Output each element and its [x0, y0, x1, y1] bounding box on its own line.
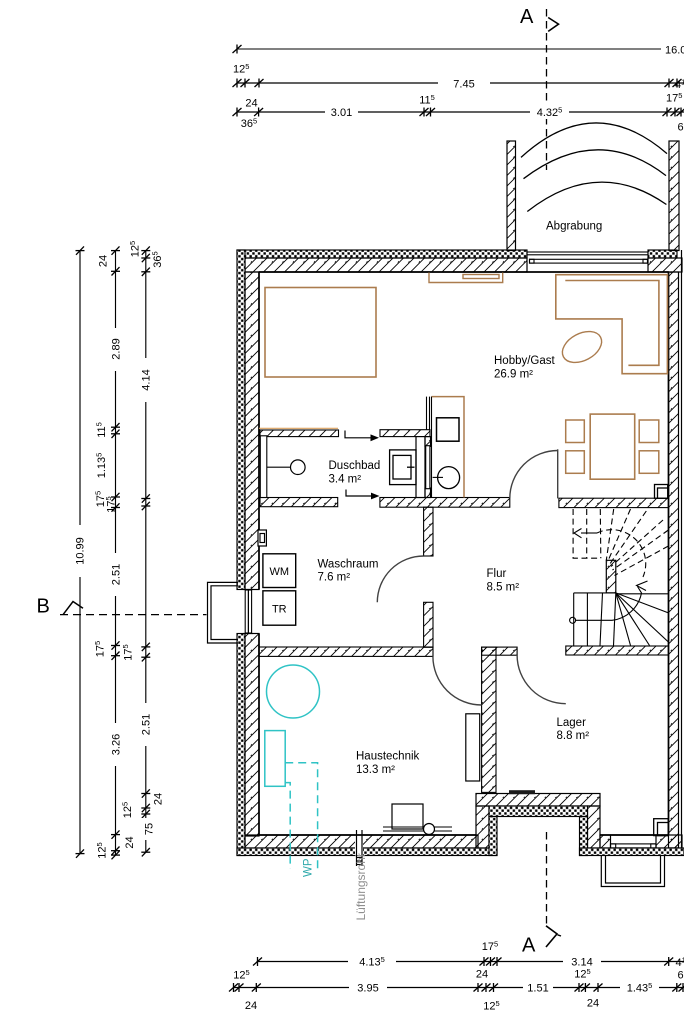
- svg-text:24: 24: [98, 255, 110, 267]
- svg-text:Waschraum: Waschraum: [318, 559, 379, 571]
- svg-text:Flur: Flur: [487, 568, 507, 580]
- svg-text:1.51: 1.51: [527, 983, 548, 995]
- svg-text:WP: WP: [303, 858, 315, 877]
- svg-text:75: 75: [144, 823, 156, 835]
- svg-text:10.99: 10.99: [75, 537, 87, 565]
- svg-text:Hobby/Gast: Hobby/Gast: [494, 355, 556, 367]
- svg-text:24: 24: [587, 998, 599, 1010]
- svg-text:13.3 m²: 13.3 m²: [356, 764, 395, 776]
- svg-text:16.0: 16.0: [665, 45, 684, 57]
- svg-text:Duschbad: Duschbad: [329, 460, 381, 472]
- svg-text:Lüftungsrohr: Lüftungsrohr: [354, 853, 368, 920]
- svg-text:24: 24: [476, 969, 488, 981]
- svg-text:4.14: 4.14: [141, 369, 153, 390]
- svg-text:8.8 m²: 8.8 m²: [557, 730, 590, 742]
- svg-text:24: 24: [245, 98, 257, 110]
- svg-text:3.95: 3.95: [357, 983, 378, 995]
- svg-text:8.5 m²: 8.5 m²: [487, 582, 520, 594]
- svg-text:Lager: Lager: [557, 717, 587, 729]
- svg-text:A: A: [520, 6, 534, 28]
- svg-text:24: 24: [124, 836, 136, 848]
- svg-text:B: B: [37, 596, 50, 618]
- svg-text:TR: TR: [272, 604, 287, 616]
- svg-text:26.9 m²: 26.9 m²: [494, 369, 533, 381]
- svg-text:7.6 m²: 7.6 m²: [318, 572, 351, 584]
- svg-text:Haustechnik: Haustechnik: [356, 751, 420, 763]
- svg-text:6: 6: [678, 122, 684, 134]
- svg-text:3.01: 3.01: [331, 107, 352, 119]
- svg-text:24: 24: [153, 793, 165, 805]
- svg-text:2.51: 2.51: [111, 564, 123, 585]
- svg-text:7.45: 7.45: [453, 79, 474, 91]
- svg-text:3.4 m²: 3.4 m²: [329, 474, 362, 486]
- svg-text:A: A: [522, 935, 536, 957]
- svg-text:2.89: 2.89: [111, 338, 123, 359]
- svg-text:3.26: 3.26: [111, 734, 123, 755]
- svg-text:24: 24: [245, 1000, 257, 1012]
- svg-text:2.51: 2.51: [141, 714, 153, 735]
- svg-text:6: 6: [678, 970, 684, 982]
- svg-text:WM: WM: [270, 566, 290, 578]
- svg-text:Abgrabung: Abgrabung: [546, 221, 602, 233]
